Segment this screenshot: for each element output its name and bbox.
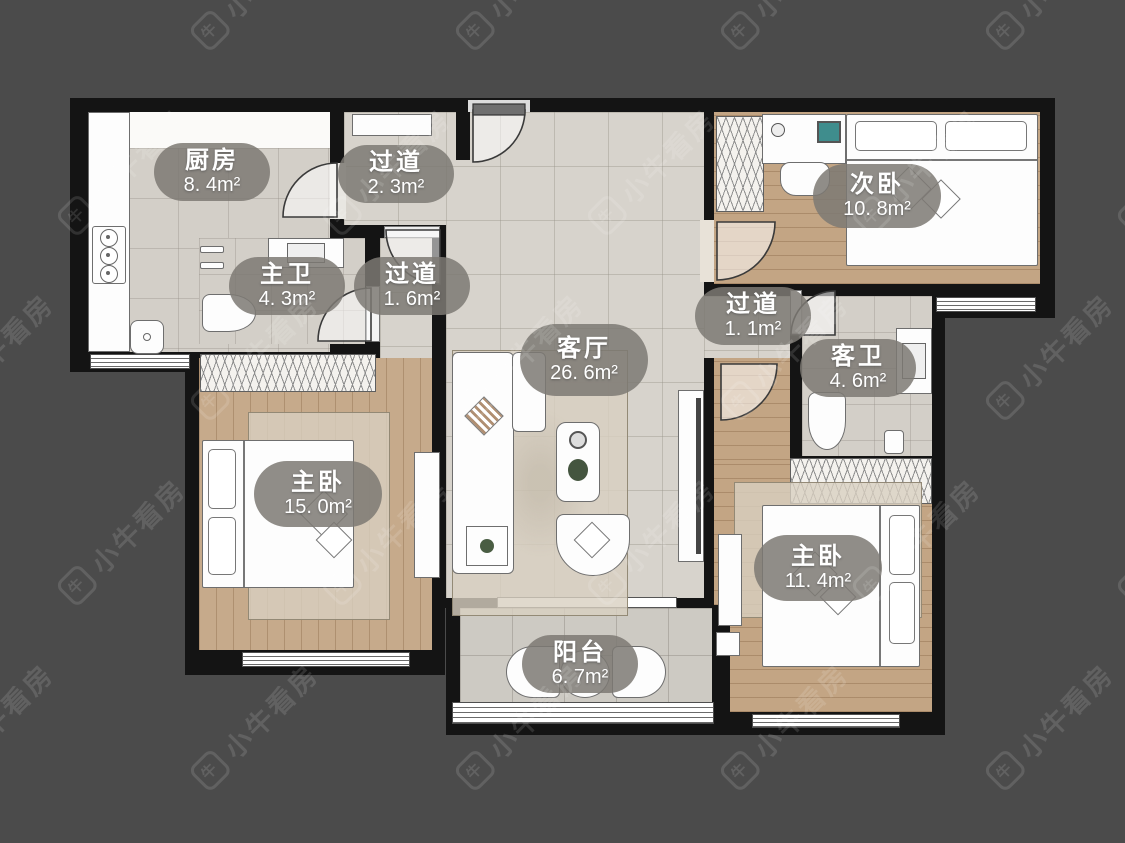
watermark: 牛小牛看房 — [1112, 99, 1125, 240]
room-label-guest-bath: 客卫4. 6m² — [800, 339, 916, 397]
desk-lamp-icon — [771, 123, 785, 137]
coffee-table — [556, 422, 600, 502]
watermark-text: 小牛看房 — [81, 469, 193, 581]
pillow — [945, 121, 1027, 151]
bull-logo-icon: 牛 — [187, 7, 232, 52]
watermark-text: 小牛看房 — [744, 0, 856, 26]
bull-logo-icon: 牛 — [1114, 192, 1125, 237]
balcony-window — [452, 702, 714, 724]
watermark: 牛小牛看房 — [715, 0, 856, 55]
watermark: 牛小牛看房 — [0, 0, 61, 55]
watermark: 牛小牛看房 — [185, 654, 326, 795]
watermark-text: 小牛看房 — [214, 0, 326, 26]
watermark: 牛小牛看房 — [450, 0, 591, 55]
watermark: 牛小牛看房 — [0, 654, 61, 795]
second-bedroom-door-opening — [700, 220, 714, 282]
kitchen-sink — [130, 320, 164, 354]
room-label-second-bedroom: 次卧10. 8m² — [813, 164, 941, 228]
watermark: 牛小牛看房 — [980, 0, 1121, 55]
desk — [762, 114, 846, 164]
second-bedroom-wardrobe — [716, 116, 764, 212]
plant-icon — [480, 539, 494, 553]
picture-frame-icon — [817, 121, 841, 143]
master-bedroom-wardrobe — [200, 354, 376, 392]
master-bedroom-window — [242, 652, 410, 667]
bull-logo-icon: 牛 — [717, 747, 762, 792]
sink-drain-icon — [143, 333, 151, 341]
watermark: 牛小牛看房 — [52, 469, 193, 610]
armchair-pillow — [574, 522, 611, 559]
bull-logo-icon: 牛 — [187, 747, 232, 792]
mid-hallway-threshold — [384, 226, 440, 238]
pillow — [208, 449, 236, 509]
room-label-kitchen: 厨房8. 4m² — [154, 143, 270, 201]
bedroom-right-console — [718, 534, 742, 626]
bedroom-right-window — [752, 714, 900, 728]
bull-logo-icon: 牛 — [717, 7, 762, 52]
entry-shoe-cabinet — [352, 114, 432, 136]
bull-logo-icon: 牛 — [452, 747, 497, 792]
bull-logo-icon: 牛 — [982, 377, 1027, 422]
entry-threshold — [468, 100, 530, 112]
bull-logo-icon: 牛 — [1114, 562, 1125, 607]
watermark-text: 小牛看房 — [1009, 654, 1121, 766]
watermark-text: 小牛看房 — [1009, 0, 1121, 26]
bull-logo-icon: 牛 — [982, 7, 1027, 52]
room-label-hallway-top: 过道2. 3m² — [338, 145, 454, 203]
tv-screen — [696, 398, 701, 554]
bull-logo-icon: 牛 — [452, 7, 497, 52]
watermark-text: 小牛看房 — [0, 284, 61, 396]
room-label-balcony: 阳台6. 7m² — [522, 635, 638, 693]
room-label-hallway-mid: 过道1. 6m² — [354, 257, 470, 315]
pillow — [889, 582, 915, 644]
kitchen-stove — [92, 226, 126, 284]
bull-logo-icon: 牛 — [54, 562, 99, 607]
room-label-living-room: 客厅26. 6m² — [520, 324, 648, 396]
master-bath-shower-valve — [200, 246, 224, 253]
watermark-text: 小牛看房 — [479, 0, 591, 26]
entry-wall-stub — [456, 112, 470, 160]
blanket-line — [879, 506, 881, 666]
watermark: 牛小牛看房 — [980, 654, 1121, 795]
room-label-bedroom-right: 主卧11. 4m² — [754, 535, 882, 601]
watermark: 牛小牛看房 — [185, 0, 326, 55]
master-bedroom-dresser — [414, 452, 440, 578]
room-label-hallway-right: 过道1. 1m² — [695, 287, 811, 345]
bowl-icon — [569, 431, 587, 449]
stove-burner-icon — [100, 247, 118, 265]
bull-logo-icon: 牛 — [982, 747, 1027, 792]
blanket-line — [847, 159, 1037, 161]
room-label-master-bedroom: 主卧15. 0m² — [254, 461, 382, 527]
room-label-master-bath: 主卫4. 3m² — [229, 257, 345, 315]
plant-icon — [568, 459, 588, 481]
stove-burner-icon — [100, 229, 118, 247]
blanket-line — [243, 441, 245, 587]
second-bedroom-window — [936, 297, 1036, 312]
pillow — [855, 121, 937, 151]
pillow — [208, 517, 236, 575]
floor-plan-canvas: 厨房8. 4m² 过道2. 3m² 次卧10. 8m² 主卫4. 3m² 过道1… — [0, 0, 1125, 843]
side-table — [466, 526, 508, 566]
guest-bath-faucet — [884, 430, 904, 454]
master-bath-shower-valve — [200, 262, 224, 269]
bedroom-right-corridor-floor — [714, 358, 790, 460]
guest-bath-toilet — [808, 392, 846, 450]
watermark: 牛小牛看房 — [1112, 469, 1125, 610]
watermark-text: 小牛看房 — [0, 654, 61, 766]
watermark-text: 小牛看房 — [0, 0, 61, 26]
watermark: 牛小牛看房 — [0, 284, 61, 425]
stove-burner-icon — [100, 265, 118, 283]
pillow — [889, 515, 915, 575]
kitchen-window — [90, 354, 190, 369]
bedroom-right-nightstand — [716, 632, 740, 656]
